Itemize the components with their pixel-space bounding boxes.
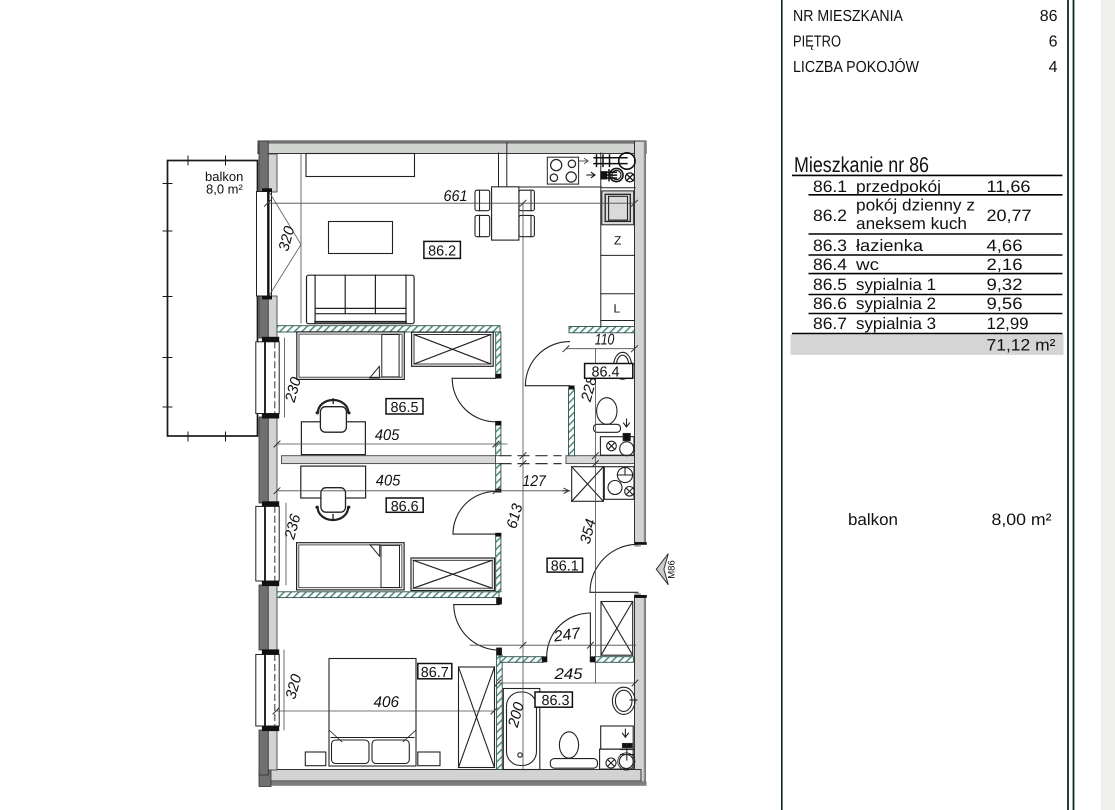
svg-text:4,66: 4,66 xyxy=(987,237,1023,255)
svg-text:sypialnia 2: sypialnia 2 xyxy=(856,295,936,313)
svg-text:przedpokój: przedpokój xyxy=(856,178,941,196)
svg-text:NR MIESZKANIA: NR MIESZKANIA xyxy=(793,8,903,25)
svg-text:pokój dzienny z: pokój dzienny z xyxy=(856,196,975,214)
svg-text:86.4: 86.4 xyxy=(592,364,620,380)
svg-text:8,00 m²: 8,00 m² xyxy=(992,511,1053,529)
svg-text:245: 245 xyxy=(553,666,582,683)
svg-text:127: 127 xyxy=(522,473,547,490)
svg-text:L: L xyxy=(614,302,621,316)
svg-text:9,56: 9,56 xyxy=(987,295,1023,313)
svg-text:sypialnia 3: sypialnia 3 xyxy=(856,315,936,333)
svg-text:8,0 m²: 8,0 m² xyxy=(206,182,244,197)
svg-text:LICZBA POKOJÓW: LICZBA POKOJÓW xyxy=(793,58,920,76)
svg-text:balkon: balkon xyxy=(848,511,898,529)
svg-text:86.1: 86.1 xyxy=(813,178,847,196)
svg-text:Z: Z xyxy=(614,234,621,248)
svg-text:86.7: 86.7 xyxy=(813,315,847,333)
svg-text:wc: wc xyxy=(855,256,879,274)
svg-text:661: 661 xyxy=(444,188,468,205)
svg-text:405: 405 xyxy=(376,473,401,490)
svg-text:11,66: 11,66 xyxy=(987,178,1031,196)
svg-text:110: 110 xyxy=(595,331,615,348)
svg-text:86.5: 86.5 xyxy=(813,276,847,294)
svg-text:86.4: 86.4 xyxy=(813,256,847,274)
svg-text:86.3: 86.3 xyxy=(813,237,847,255)
svg-text:86.6: 86.6 xyxy=(391,499,419,515)
svg-text:86.5: 86.5 xyxy=(391,400,419,416)
svg-text:sypialnia 1: sypialnia 1 xyxy=(856,276,936,294)
svg-text:20,77: 20,77 xyxy=(987,207,1032,225)
svg-text:86.2: 86.2 xyxy=(813,207,847,225)
svg-text:86.1: 86.1 xyxy=(551,559,579,575)
svg-text:86.3: 86.3 xyxy=(542,693,570,709)
svg-text:405: 405 xyxy=(375,427,400,444)
svg-text:Mieszkanie nr 86: Mieszkanie nr 86 xyxy=(794,153,929,177)
svg-text:71,12 m²: 71,12 m² xyxy=(987,337,1057,355)
svg-text:406: 406 xyxy=(374,694,400,711)
svg-text:86.2: 86.2 xyxy=(428,243,456,259)
svg-text:łazienka: łazienka xyxy=(856,237,924,255)
svg-text:aneksem kuch: aneksem kuch xyxy=(856,215,967,233)
svg-text:2,16: 2,16 xyxy=(987,256,1023,274)
svg-text:12,99: 12,99 xyxy=(987,315,1029,333)
svg-text:86: 86 xyxy=(1040,8,1058,25)
svg-text:9,32: 9,32 xyxy=(987,276,1023,294)
svg-text:PIĘTRO: PIĘTRO xyxy=(793,34,841,51)
svg-text:86.7: 86.7 xyxy=(421,665,449,681)
svg-text:4: 4 xyxy=(1049,59,1058,76)
svg-text:6: 6 xyxy=(1049,34,1058,51)
svg-text:M86: M86 xyxy=(667,560,678,578)
svg-text:86.6: 86.6 xyxy=(813,295,847,313)
